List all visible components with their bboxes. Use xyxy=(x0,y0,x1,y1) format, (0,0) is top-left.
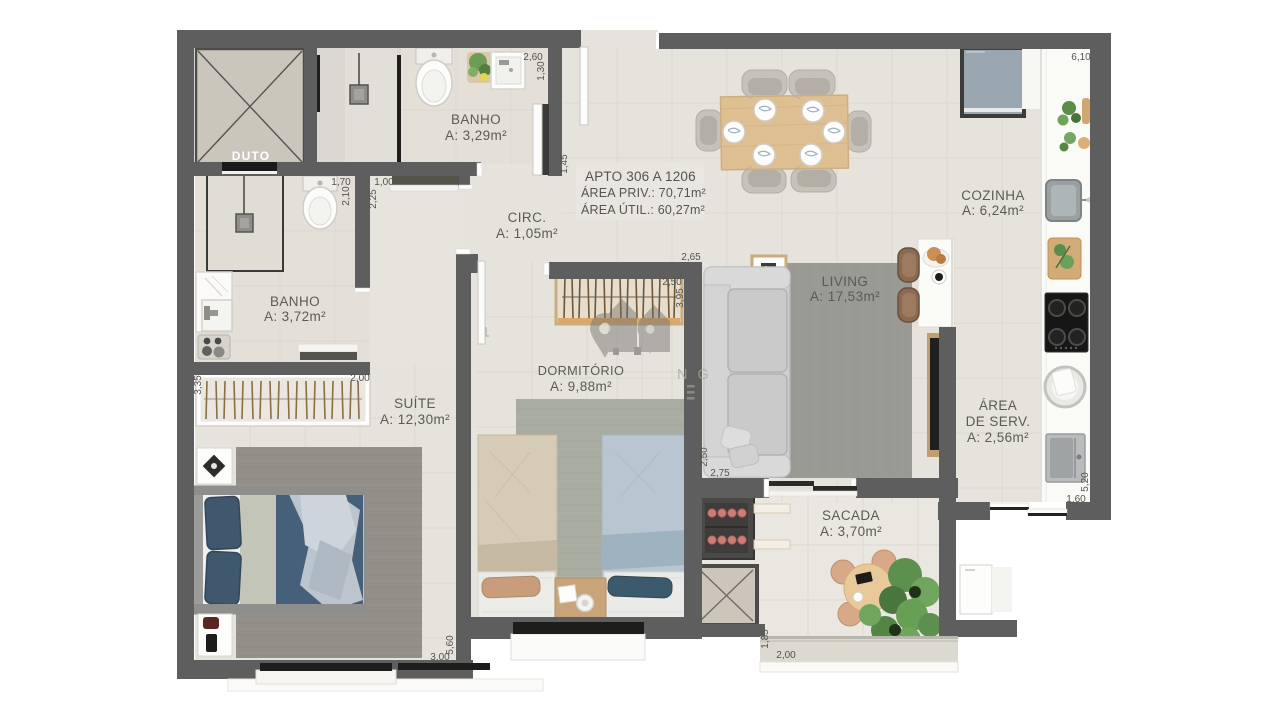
svg-text:1,60: 1,60 xyxy=(1066,494,1086,505)
svg-text:1,85: 1,85 xyxy=(760,629,771,649)
svg-text:2,75: 2,75 xyxy=(710,468,730,479)
svg-text:SACADA: SACADA xyxy=(822,508,880,523)
svg-text:2,50: 2,50 xyxy=(662,277,682,288)
svg-text:2,00: 2,00 xyxy=(776,650,796,661)
svg-text:DE SERV.: DE SERV. xyxy=(966,414,1031,429)
svg-text:BANHO: BANHO xyxy=(270,294,320,309)
svg-text:N G: N G xyxy=(677,367,712,383)
svg-text:A: 12,30m²: A: 12,30m² xyxy=(380,412,450,427)
svg-text:2,10: 2,10 xyxy=(341,186,352,206)
svg-text:5,20: 5,20 xyxy=(1080,472,1091,492)
svg-text:2,00: 2,00 xyxy=(350,373,370,384)
svg-text:A: 3,72m²: A: 3,72m² xyxy=(264,309,326,324)
svg-text:3,35: 3,35 xyxy=(193,375,204,395)
svg-text:DORMITÓRIO: DORMITÓRIO xyxy=(538,363,624,378)
svg-text:DUTO: DUTO xyxy=(232,149,271,163)
svg-text:A: 6,24m²: A: 6,24m² xyxy=(962,203,1024,218)
svg-text:5,60: 5,60 xyxy=(445,635,456,655)
svg-text:2,65: 2,65 xyxy=(681,252,701,263)
svg-text:ÁREA PRIV.: 70,71m²: ÁREA PRIV.: 70,71m² xyxy=(581,185,706,200)
svg-text:2,25: 2,25 xyxy=(368,189,379,209)
svg-text:A: 3,70m²: A: 3,70m² xyxy=(820,524,882,539)
svg-text:1,00: 1,00 xyxy=(374,177,394,188)
svg-text:SUÍTE: SUÍTE xyxy=(394,396,436,411)
svg-text:A: 17,53m²: A: 17,53m² xyxy=(810,289,880,304)
svg-text:1,30: 1,30 xyxy=(536,61,547,81)
svg-text:A: 3,29m²: A: 3,29m² xyxy=(445,128,507,143)
svg-text:ÁREA ÚTIL.: 60,27m²: ÁREA ÚTIL.: 60,27m² xyxy=(581,202,705,217)
svg-text:1,45: 1,45 xyxy=(559,154,570,174)
svg-text:BANHO: BANHO xyxy=(451,112,501,127)
svg-text:3,95: 3,95 xyxy=(675,288,686,308)
svg-text:ÁREA: ÁREA xyxy=(979,398,1017,413)
svg-text:6,10: 6,10 xyxy=(1071,52,1091,63)
svg-text:APTO 306 A 1206: APTO 306 A 1206 xyxy=(585,169,696,184)
svg-text:COZINHA: COZINHA xyxy=(961,188,1025,203)
svg-text:A: 9,88m²: A: 9,88m² xyxy=(550,379,612,394)
svg-text:A: 2,56m²: A: 2,56m² xyxy=(967,430,1029,445)
svg-text:A: 1,05m²: A: 1,05m² xyxy=(496,226,558,241)
svg-text:CIRC.: CIRC. xyxy=(508,210,547,225)
svg-text:LIVING: LIVING xyxy=(822,274,869,289)
svg-text:2,50: 2,50 xyxy=(699,447,710,467)
